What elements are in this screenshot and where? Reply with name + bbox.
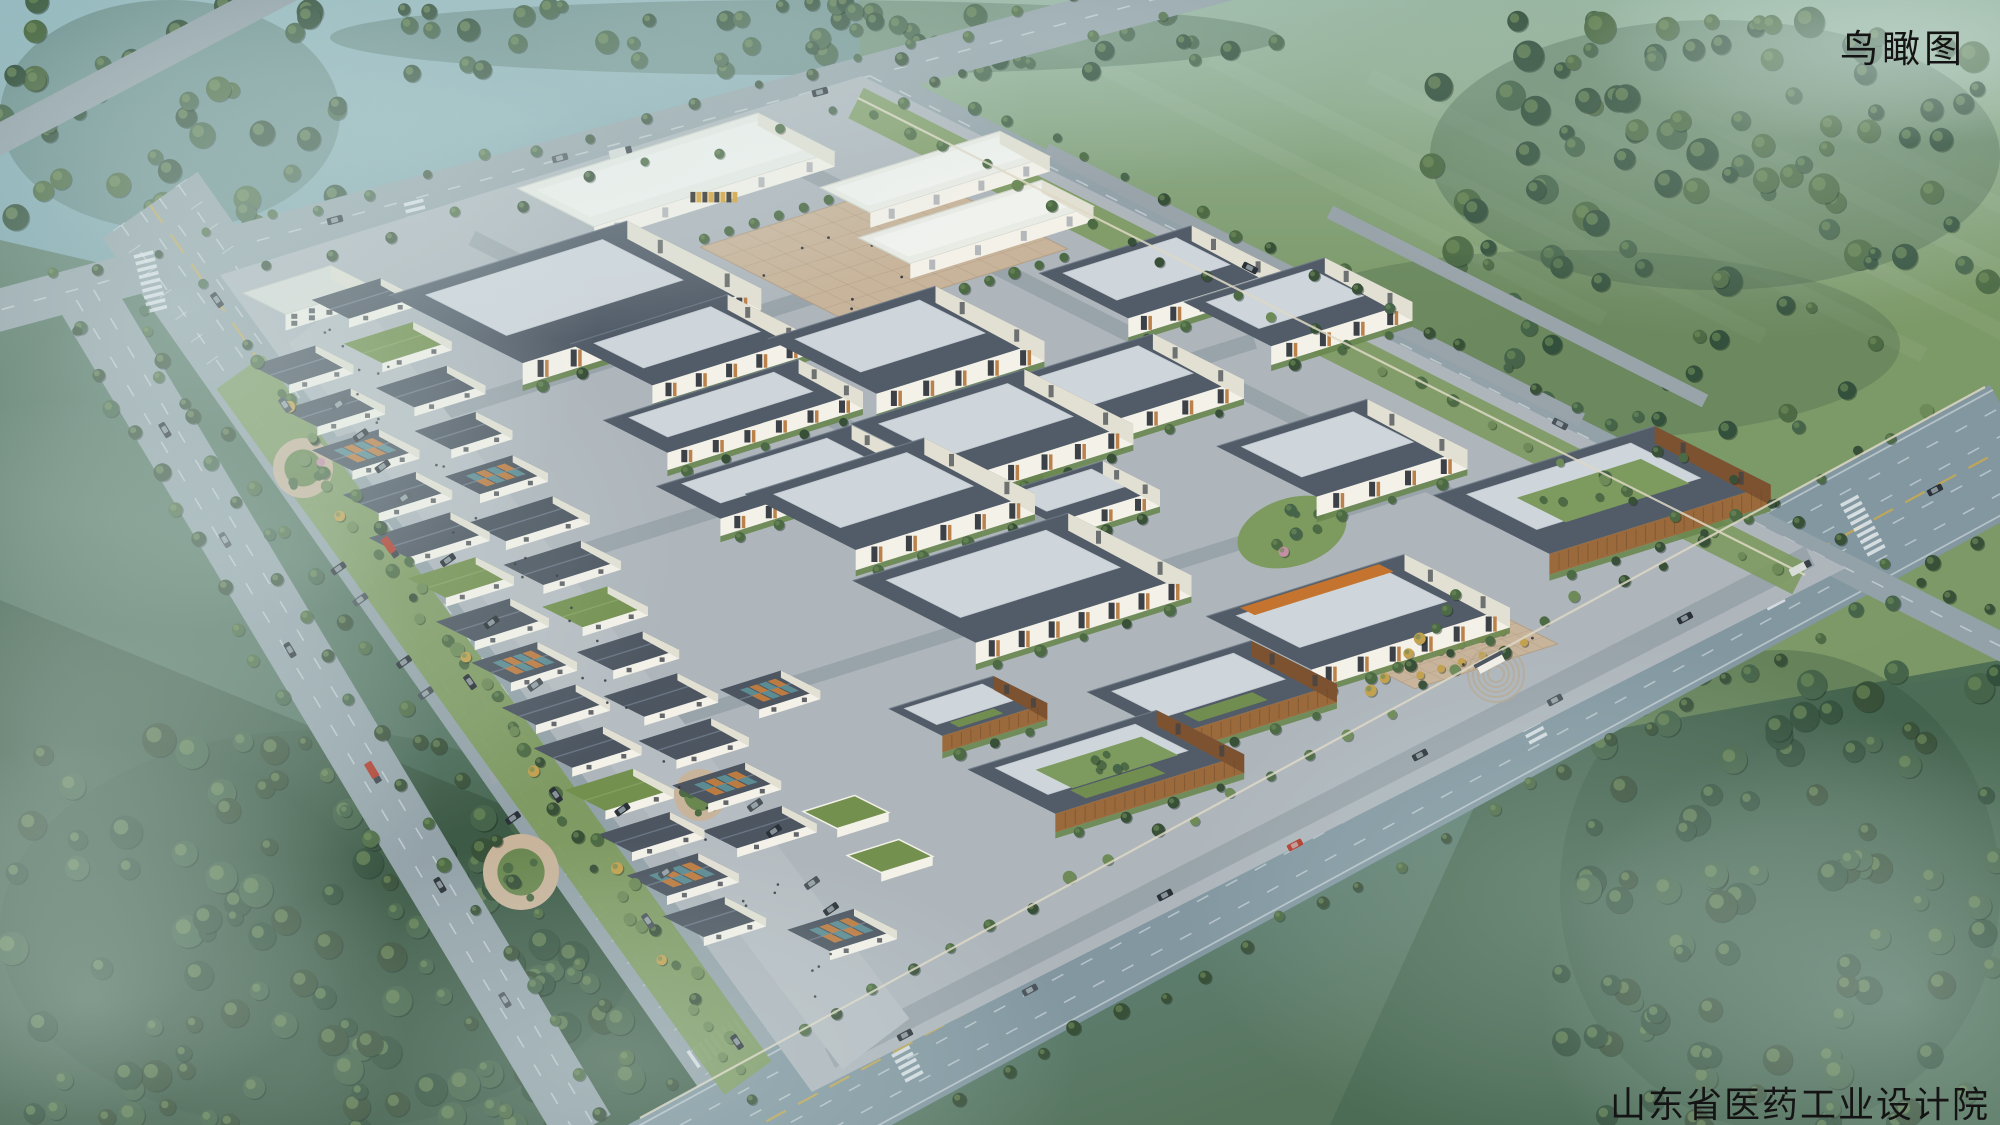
design-institute-credit: 山东省医药工业设计院 (1610, 1076, 1990, 1125)
view-title-label: 鸟瞰图 (1840, 18, 1966, 73)
industrial-park-rendering (0, 0, 2000, 1125)
aerial-rendering-stage: 鸟瞰图 山东省医药工业设计院 (0, 0, 2000, 1125)
